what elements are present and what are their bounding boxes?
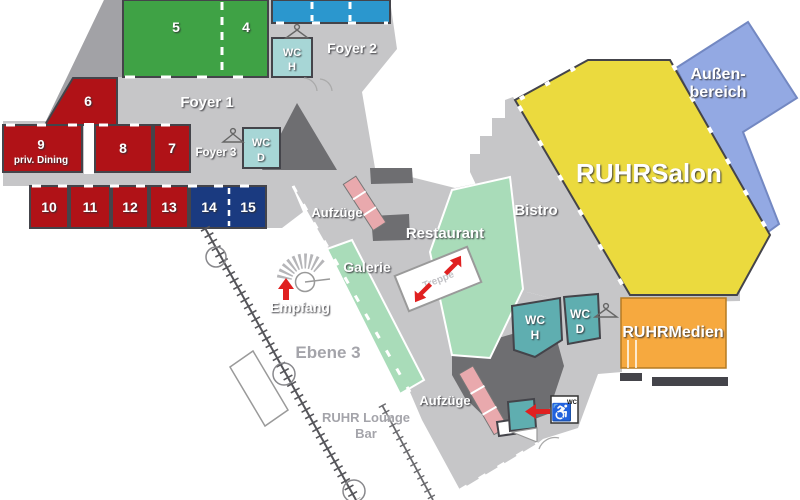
wc-h-top-label-h: H [288, 61, 296, 73]
room-8-label: 8 [119, 140, 127, 156]
lounge-label-line2: Bar [355, 426, 377, 441]
aufzuege-upper-label: Aufzüge [311, 205, 362, 220]
foyer2-label: Foyer 2 [327, 40, 377, 56]
foyer1-label: Foyer 1 [180, 94, 233, 111]
empfang-label: Empfang [270, 299, 330, 315]
wc-d-top-label-d: D [257, 152, 265, 164]
wc-sign-label: WC [567, 400, 578, 406]
room-15-label: 15 [240, 199, 256, 215]
wall-bar-below-medien-long [652, 377, 728, 386]
room-10-label: 10 [41, 199, 57, 215]
wc-h-bottom-label-h: H [531, 328, 540, 342]
room-4-label: 4 [242, 19, 250, 35]
wc-h-top-label-wc: WC [283, 47, 301, 59]
ruhrsalon-label: RUHRSalon [576, 158, 722, 188]
room-5-label: 5 [172, 19, 180, 35]
wc-d-bottom-label-wc: WC [570, 307, 590, 321]
room-12-label: 12 [122, 199, 138, 215]
galerie-label: Galerie [343, 259, 391, 275]
bistro-label: Bistro [514, 202, 557, 219]
floor-plan: Treppe [0, 0, 800, 500]
room-13-label: 13 [161, 199, 177, 215]
room-14-label: 14 [201, 199, 217, 215]
wc-d-top-label-wc: WC [252, 137, 270, 149]
wall-bar-below-medien-short [620, 373, 642, 381]
floor-plan-svg: Treppe [0, 0, 800, 500]
ebene3-label: Ebene 3 [295, 343, 360, 362]
aussenbereich-label-line1: Außen- [690, 66, 745, 83]
lift-core-upper-a [370, 168, 413, 184]
room-block-green [123, 0, 268, 77]
wc-d-bottom-label-d: D [576, 322, 585, 336]
empfang-arrow-icon [278, 278, 294, 300]
wc-h-bottom-label-wc: WC [525, 313, 545, 327]
ruhrmedien-label: RUHRMedien [622, 324, 723, 341]
column-circle [273, 363, 295, 385]
restaurant-label: Restaurant [406, 225, 484, 242]
accessible-wc-sign: ♿ WC [551, 396, 578, 423]
room-7-label: 7 [168, 140, 176, 156]
room-11-label: 11 [83, 199, 98, 215]
room-9-sublabel: priv. Dining [14, 155, 68, 166]
room-gap [84, 123, 94, 174]
room-9-label: 9 [37, 137, 44, 152]
room-6-label: 6 [84, 93, 92, 109]
foyer3-label: Foyer 3 [196, 147, 237, 159]
room-block-cyan [272, 0, 390, 23]
lounge-label-line1: RUHR Lounge [322, 410, 410, 425]
aufzuege-lower-label: Aufzüge [419, 393, 470, 408]
aussenbereich-label-line2: bereich [690, 84, 747, 101]
